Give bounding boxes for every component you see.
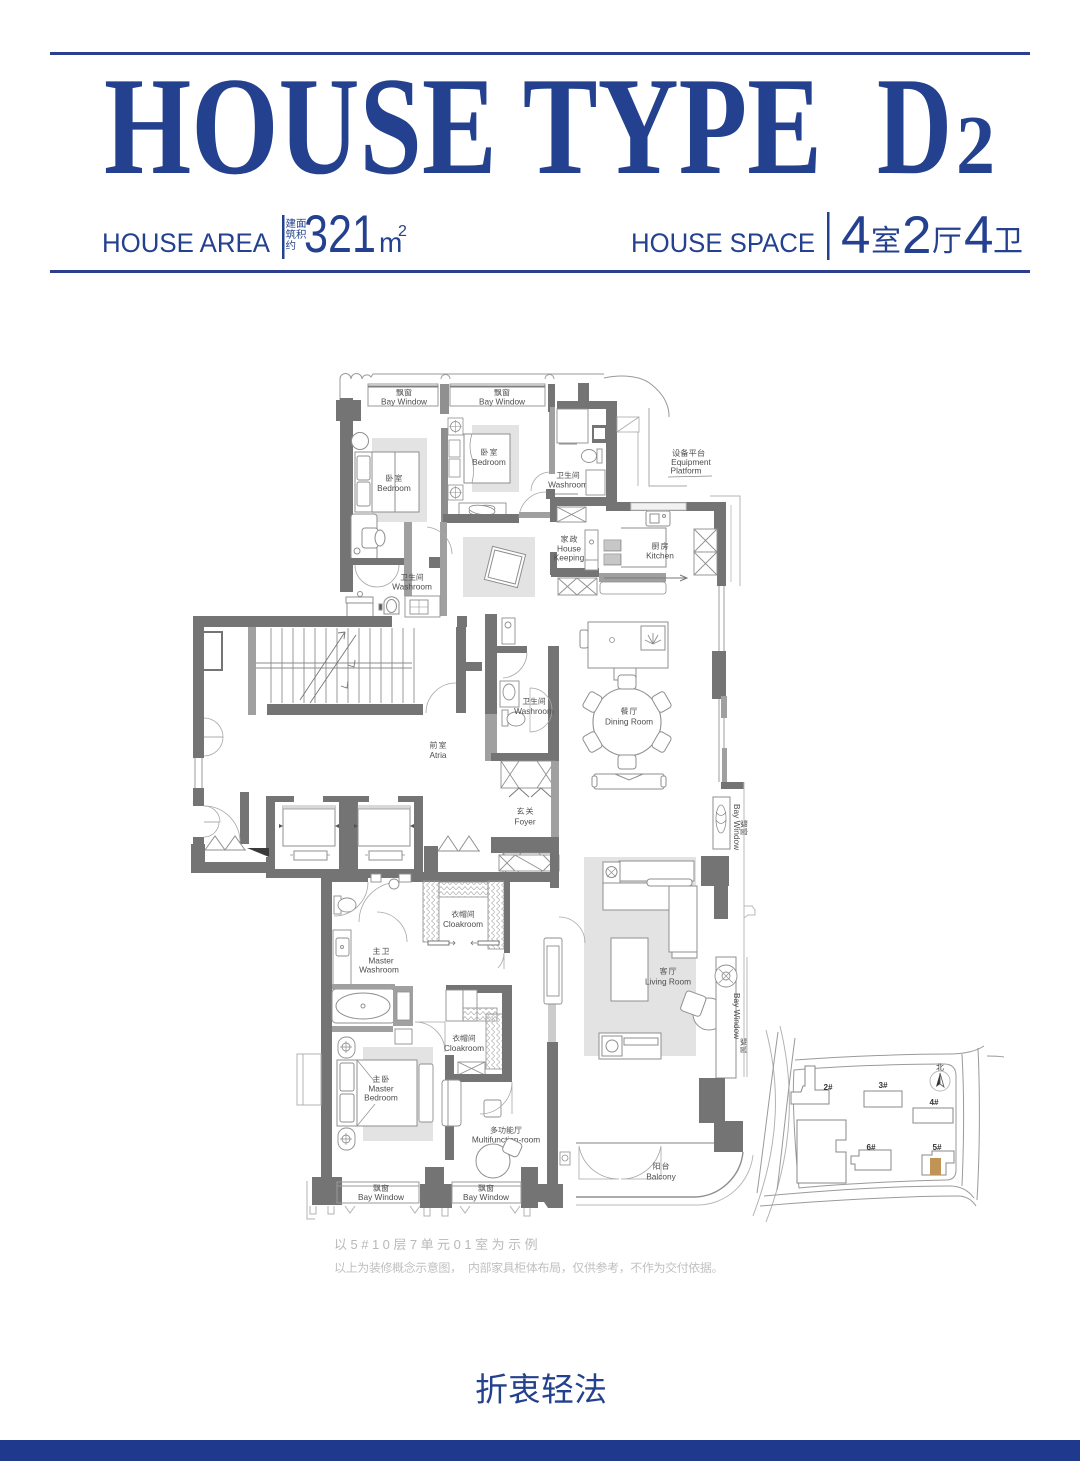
svg-text:Bedroom: Bedroom <box>472 457 506 467</box>
svg-text:Washroom: Washroom <box>548 480 588 490</box>
svg-text:HOUSE AREA: HOUSE AREA <box>102 228 270 258</box>
svg-text:Bay Window: Bay Window <box>732 804 742 851</box>
svg-text:01: 01 <box>454 1237 472 1252</box>
svg-text:Dining Room: Dining Room <box>605 717 653 727</box>
svg-text:4: 4 <box>964 206 993 265</box>
svg-text:4: 4 <box>841 206 870 265</box>
svg-text:7: 7 <box>410 1237 417 1252</box>
svg-text:Balcony: Balcony <box>646 1172 676 1182</box>
svg-text:5#10: 5#10 <box>351 1237 390 1252</box>
svg-text:3#: 3# <box>878 1081 888 1090</box>
svg-text:6#: 6# <box>866 1143 876 1152</box>
svg-text:Washroom: Washroom <box>359 965 399 975</box>
svg-text:Bay Window: Bay Window <box>358 1192 405 1202</box>
svg-text:Washroom: Washroom <box>514 706 554 716</box>
svg-text:Platform: Platform <box>671 466 702 476</box>
svg-text:2: 2 <box>902 206 931 265</box>
svg-text:D: D <box>877 49 952 204</box>
svg-text:2: 2 <box>398 223 407 240</box>
svg-text:Bay Window: Bay Window <box>479 397 526 407</box>
svg-text:2: 2 <box>956 99 995 192</box>
svg-text:2#: 2# <box>823 1083 833 1092</box>
svg-text:Living Room: Living Room <box>645 977 691 987</box>
svg-text:Bedroom: Bedroom <box>364 1093 398 1103</box>
svg-text:4#: 4# <box>929 1098 939 1107</box>
svg-text:Bay Window: Bay Window <box>381 397 428 407</box>
svg-text:Cloakroom: Cloakroom <box>444 1043 484 1053</box>
svg-text:321: 321 <box>304 205 376 264</box>
svg-text:Kitchen: Kitchen <box>646 551 674 561</box>
svg-text:Keeping: Keeping <box>554 553 585 563</box>
svg-text:Washroom: Washroom <box>392 582 432 592</box>
svg-text:Bay Window: Bay Window <box>732 993 742 1040</box>
svg-text:Cloakroom: Cloakroom <box>443 919 483 929</box>
svg-text:Atria: Atria <box>429 750 446 760</box>
svg-text:5#: 5# <box>932 1143 942 1152</box>
svg-text:HOUSE SPACE: HOUSE SPACE <box>631 228 815 258</box>
svg-text:Bedroom: Bedroom <box>377 483 411 493</box>
svg-text:Foyer: Foyer <box>514 817 535 827</box>
svg-text:Bay Window: Bay Window <box>463 1192 510 1202</box>
svg-text:HOUSE TYPE: HOUSE TYPE <box>104 49 822 204</box>
